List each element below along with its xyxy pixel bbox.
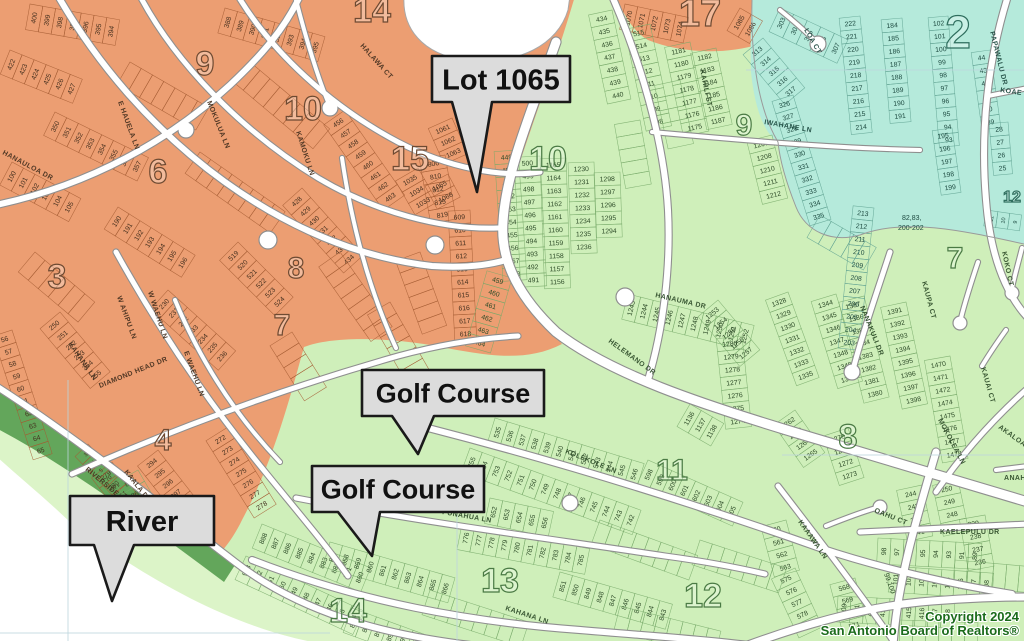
street-label: KAELEPULU DR xyxy=(940,529,1000,536)
section-number: 6 xyxy=(149,153,168,191)
cul-de-sac xyxy=(426,236,444,254)
lot-number: 191 xyxy=(894,113,906,121)
section-number: 9 xyxy=(196,45,215,83)
lot-number: 97 xyxy=(940,85,948,93)
section-number: 7 xyxy=(947,242,964,275)
lot-number: 207 xyxy=(849,288,861,296)
lot-range-label: 200-202 xyxy=(898,225,924,232)
lot-number: 188 xyxy=(891,74,903,82)
section-number: 10 xyxy=(529,140,567,178)
lot-number: 614 xyxy=(457,279,469,287)
lot-number: 1298 xyxy=(600,176,616,184)
section-number: 15 xyxy=(391,140,429,178)
callout-label: River xyxy=(106,506,179,538)
lot-number: 1231 xyxy=(574,179,590,187)
lot-number: 1295 xyxy=(601,215,617,223)
lot-number: 219 xyxy=(848,59,860,67)
street-label: ANAH xyxy=(1004,475,1024,482)
plat-map-canvas[interactable]: 4003993983973963953943883893903913923933… xyxy=(0,0,1024,641)
section-number: 12 xyxy=(684,577,722,615)
lot-number: 27 xyxy=(996,139,1004,147)
lot-number: 498 xyxy=(523,186,535,194)
section-number: 9 xyxy=(736,109,753,142)
lot-number: 1159 xyxy=(549,240,564,248)
cul-de-sac xyxy=(562,495,578,511)
lot-number: 1158 xyxy=(549,253,564,261)
copyright-line1: Copyright 2024 xyxy=(821,610,1019,624)
lot-number: 609 xyxy=(454,214,466,222)
lot-number: 1157 xyxy=(549,266,564,274)
lot-number: 1236 xyxy=(576,244,592,252)
lot-number: 1234 xyxy=(575,218,591,226)
lot-number: 25 xyxy=(998,165,1006,173)
lot-number: 204 xyxy=(845,326,857,334)
lot-number: 494 xyxy=(526,238,538,246)
lot-number: 94 xyxy=(933,550,940,558)
lot-number: 1163 xyxy=(547,188,562,196)
lot-number: 28 xyxy=(995,126,1003,134)
lot-number: 217 xyxy=(851,85,863,93)
lot-number: 493 xyxy=(526,251,538,259)
lot-number: 98 xyxy=(939,72,947,80)
lot-number: 212 xyxy=(855,223,867,231)
lot-number: 184 xyxy=(886,22,898,30)
section-number: 10 xyxy=(284,90,322,128)
lot-number: 611 xyxy=(455,240,466,248)
lot-number: 617 xyxy=(459,318,471,326)
section-number: 11 xyxy=(656,454,688,487)
lot-number: 102 xyxy=(933,20,945,28)
section-number: 4 xyxy=(155,424,172,457)
lot-number: 1294 xyxy=(601,228,617,236)
lot-number: 222 xyxy=(844,20,856,28)
lot-number: 185 xyxy=(887,35,899,43)
section-number: 17 xyxy=(679,0,721,35)
lot-number: 1156 xyxy=(550,279,565,287)
lot-number: 495 xyxy=(525,225,537,233)
lot-number: 616 xyxy=(458,305,470,313)
callout-label: Golf Course xyxy=(376,379,531,409)
section-number: 2 xyxy=(945,6,971,58)
lot-number: 615 xyxy=(458,292,470,300)
lot-number: 44 xyxy=(977,55,986,63)
lot-number: 1297 xyxy=(600,189,616,197)
lot-number: 1232 xyxy=(574,192,590,200)
lot-number: 213 xyxy=(857,210,869,218)
lot-number: 218 xyxy=(850,72,862,80)
lot-number: 189 xyxy=(892,87,904,95)
lot-number: 94 xyxy=(944,124,952,132)
lot-number: 221 xyxy=(846,33,858,41)
copyright-notice: Copyright 2024 San Antonio Board of Real… xyxy=(821,610,1019,638)
lot-number: 95 xyxy=(920,549,927,557)
lot-number: 211 xyxy=(854,236,866,244)
callout-label: Lot 1065 xyxy=(442,64,560,96)
lot-number: 99 xyxy=(938,59,946,67)
lot-number: 612 xyxy=(456,253,468,261)
lot-number: 206 xyxy=(847,301,859,309)
lot-number: 1162 xyxy=(547,201,562,209)
lot-number: 203 xyxy=(843,339,855,347)
callout-label: Golf Course xyxy=(321,475,476,505)
lot-number: 1235 xyxy=(576,231,592,239)
section-number: 8 xyxy=(288,252,305,285)
section-number: 8 xyxy=(839,418,858,456)
section-number: 14 xyxy=(353,0,391,30)
copyright-line2: San Antonio Board of Realtors® xyxy=(821,624,1019,638)
map-viewport: 4003993983973963953943883893903913923933… xyxy=(0,0,1024,641)
lot-number: 187 xyxy=(890,61,902,69)
section-number: 3 xyxy=(48,258,67,296)
section-number: 12 xyxy=(1003,189,1021,206)
lot-number: 1230 xyxy=(574,166,590,174)
lot-number: 216 xyxy=(852,98,864,106)
lot-number: 98 xyxy=(881,547,888,555)
lot-range-label: 82,83, xyxy=(902,215,922,222)
lot-number: 26 xyxy=(997,152,1005,160)
lot-number: 1296 xyxy=(600,202,616,210)
lot-number: 93 xyxy=(946,551,953,559)
lot-number: 10 xyxy=(1001,217,1008,224)
lot-number: 497 xyxy=(524,199,536,207)
lot-number: 95 xyxy=(943,111,951,119)
lot-number: 186 xyxy=(888,48,900,56)
lot-number: 190 xyxy=(893,100,905,108)
section-number: 7 xyxy=(274,309,291,342)
lot-number: 1161 xyxy=(548,214,563,222)
lot-number: 97 xyxy=(894,548,901,556)
lot-number: 96 xyxy=(941,98,949,106)
lot-number: 208 xyxy=(850,275,862,283)
lot-number: 1160 xyxy=(548,227,563,235)
lot-number: 1233 xyxy=(575,205,591,213)
lot-number: 205 xyxy=(846,314,858,322)
cul-de-sac xyxy=(616,288,634,306)
lot-number: 210 xyxy=(853,249,865,257)
lot-number: 496 xyxy=(524,212,536,220)
lot-number: 491 xyxy=(528,277,540,285)
lot-number: 215 xyxy=(854,111,866,119)
section-number: 14 xyxy=(329,592,367,630)
lot-number: 492 xyxy=(527,264,539,272)
lot-number: 101 xyxy=(934,33,946,41)
cul-de-sac xyxy=(259,231,277,249)
lot-number: 220 xyxy=(847,46,859,54)
lot-number: 209 xyxy=(851,262,863,270)
lot-number: 214 xyxy=(855,124,867,132)
section-number: 13 xyxy=(481,562,519,600)
